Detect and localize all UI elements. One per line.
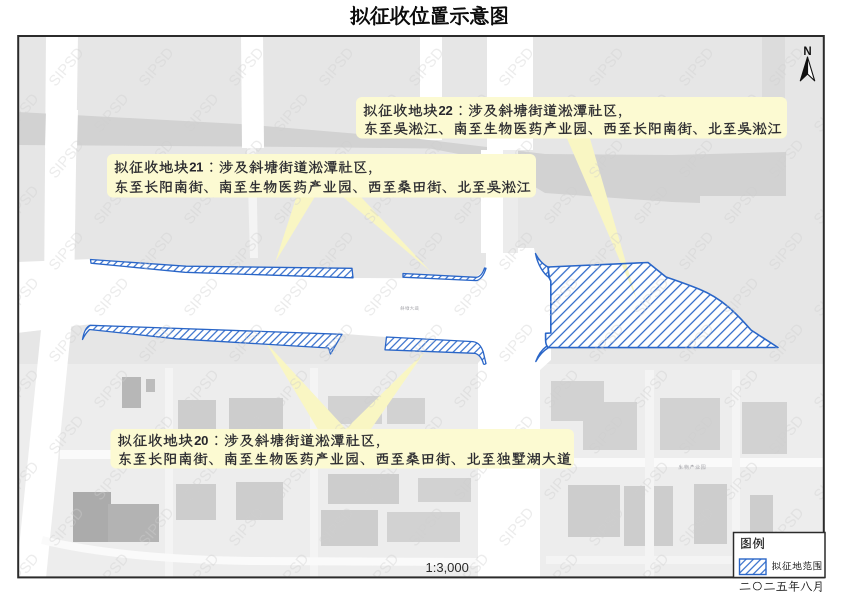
svg-text:22: 22 xyxy=(439,103,453,118)
svg-text:20: 20 xyxy=(194,433,208,448)
svg-text:N: N xyxy=(803,46,811,58)
svg-text:1:3,000: 1:3,000 xyxy=(426,560,469,575)
svg-text:21: 21 xyxy=(189,160,203,175)
